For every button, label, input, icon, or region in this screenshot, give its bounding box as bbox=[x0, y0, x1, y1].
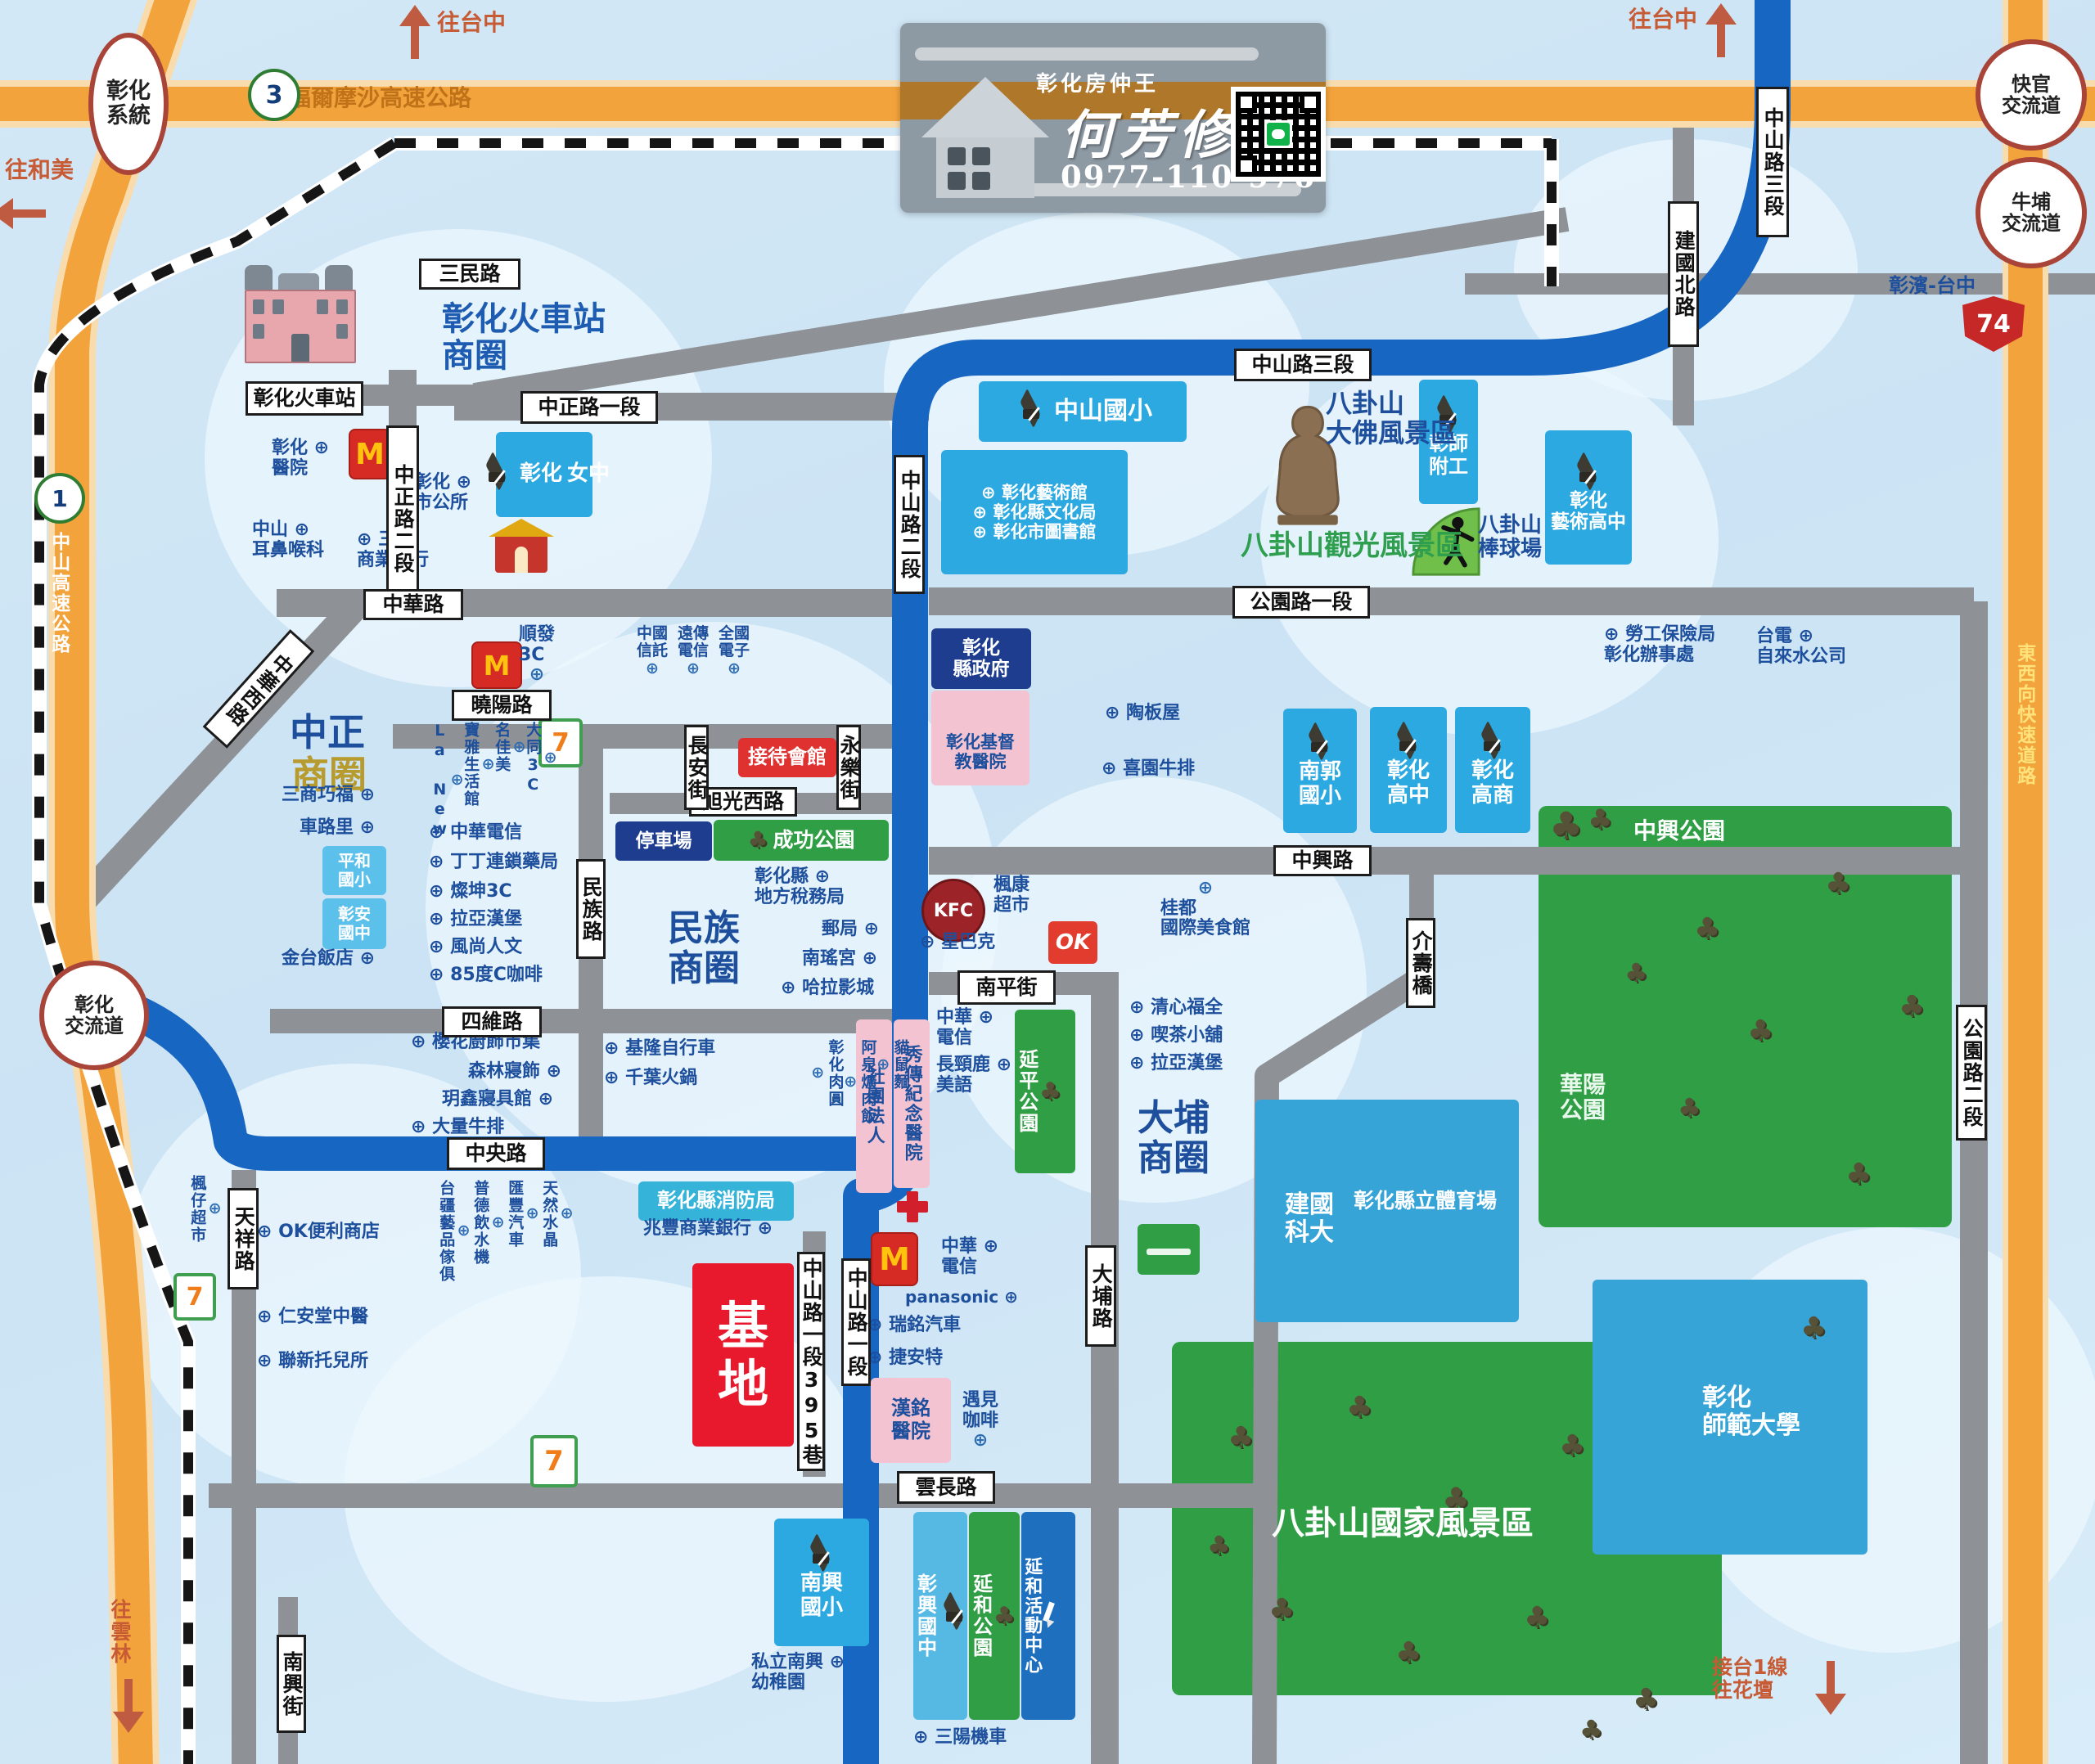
road-label-changan-st: 長安街 bbox=[684, 725, 709, 810]
poi-fengkang-market: 楓康超市 bbox=[993, 875, 1029, 916]
tree-icon: ♣ bbox=[1678, 1095, 1701, 1121]
christian-hospital-box: 彰化基督教醫院 bbox=[931, 691, 1029, 785]
road-label-siwei-rd: 四維路 bbox=[442, 1006, 542, 1037]
seven-eleven-icon: 7 bbox=[173, 1273, 216, 1321]
poi-fengshang: ⊕ 風尚人文 bbox=[429, 938, 522, 958]
poi-tsannkuen-3c: ⊕ 燦坤3C bbox=[429, 882, 512, 902]
tree-icon: ♣ bbox=[1549, 807, 1583, 844]
grad-icon bbox=[1474, 731, 1510, 756]
poi-jintai-hotel: 金台飯店 ⊕ bbox=[282, 949, 375, 970]
mcdonalds-icon: M bbox=[471, 641, 522, 689]
tree-icon: ♣ bbox=[1588, 806, 1612, 834]
fire-bureau-box: 彰化縣消防局 bbox=[638, 1181, 794, 1221]
arrow-up bbox=[399, 5, 430, 62]
east-west-expressway-label: 東西向快速道路 bbox=[2013, 643, 2034, 786]
poi-starbucks: ⊕ 星巴克 bbox=[920, 933, 995, 953]
mcdonalds-icon: M bbox=[349, 429, 391, 479]
poi-hala-cinema: ⊕ 哈拉影城 bbox=[781, 979, 874, 999]
changhua-girls-high-box: 彰化女中 bbox=[496, 432, 592, 517]
mcdonalds-icon: M bbox=[871, 1232, 918, 1286]
road-label-zhongyang-rd: 中央路 bbox=[447, 1137, 545, 1170]
poi-dingding-pharmacy: ⊕ 丁丁連鎖藥局 bbox=[429, 853, 558, 873]
zhongshan-elementary-box: 中山國小 bbox=[979, 381, 1187, 442]
poi-cht-site: 中華 ⊕電信 bbox=[941, 1237, 998, 1277]
stadium-label: 彰化縣立體育場 bbox=[1354, 1190, 1497, 1213]
line-app-icon bbox=[1264, 120, 1292, 148]
road-label-nanxing-st: 南興街 bbox=[277, 1635, 306, 1733]
to-taichung-left: 往台中 bbox=[437, 10, 506, 35]
poi-laya-burger-2: ⊕ 拉亞漢堡 bbox=[1129, 1054, 1223, 1074]
poi-labor-insurance: ⊕ 勞工保險局彰化辦事處 bbox=[1604, 625, 1715, 665]
poi-giraffe-english: 長頸鹿 ⊕美語 bbox=[936, 1055, 1011, 1096]
road-label-zhonghua-rd: 中華路 bbox=[363, 589, 463, 620]
poi-yuexin-bedding: 玥鑫寢具館 ⊕ bbox=[442, 1090, 553, 1110]
yanhe-center-box: 延和活動中心 bbox=[1021, 1512, 1075, 1720]
poi-post-office: 郵局 ⊕ bbox=[822, 920, 879, 940]
tree-icon: ♣ bbox=[747, 829, 768, 852]
road-label-tianxiang-rd: 天祥路 bbox=[228, 1188, 259, 1289]
tree-icon: ♣ bbox=[1694, 915, 1720, 944]
grad-icon bbox=[1301, 732, 1337, 757]
poi-city-office: 彰化 ⊕市公所 bbox=[414, 473, 471, 513]
poi-lanew: ⊕La New bbox=[430, 722, 466, 839]
poi-giant-bike: ⊕ 捷安特 bbox=[867, 1348, 943, 1369]
changhua-vocational-box: 彰化高商 bbox=[1455, 707, 1530, 833]
grad-icon bbox=[803, 1544, 839, 1568]
changbin-taichung-label: 彰濱-台中 bbox=[1889, 275, 1976, 297]
jianguo-tech-label: 建國科大 bbox=[1285, 1191, 1334, 1246]
bagua-tourism-label: 八卦山觀光風景區 bbox=[1241, 530, 1463, 561]
hanming-hospital-box: 漢銘醫院 bbox=[871, 1378, 951, 1463]
road-label-zhongshan-sec2-v: 中山路二段 bbox=[894, 455, 925, 594]
road-label-xiaoyang-rd: 曉陽路 bbox=[452, 690, 552, 721]
poi-puder-water: ⊕普德飲水機 bbox=[471, 1180, 507, 1266]
poi-changhua-hospital: 彰化 ⊕醫院 bbox=[272, 439, 329, 479]
poi-maoshumian: 貓鼠麵⊕ bbox=[874, 1039, 909, 1091]
poi-cht-nanping: 中華 ⊕電信 bbox=[936, 1008, 993, 1048]
county-government-box: 彰化縣政府 bbox=[931, 628, 1031, 689]
road-label-zhongxing-rd: 中興路 bbox=[1273, 845, 1372, 876]
grad-icon bbox=[1013, 399, 1049, 424]
temple-icon bbox=[488, 519, 555, 581]
art-museum-box: ⊕ 彰化藝術館⊕ 彰化縣文化局⊕ 彰化市圖書館 bbox=[941, 450, 1128, 574]
bagua-buddha-area-label: 八卦山大佛風景區 bbox=[1326, 389, 1457, 448]
road-label-jieshou-bridge: 介壽橋 bbox=[1406, 918, 1435, 1008]
road-label-zhongzheng-sec2: 中正路二段 bbox=[386, 425, 419, 612]
huayang-park-label: 華陽公園 bbox=[1560, 1072, 1606, 1123]
poi-laya-burger-1: ⊕ 拉亞漢堡 bbox=[429, 910, 522, 930]
poi-taobanwu: ⊕ 陶板屋 bbox=[1105, 704, 1180, 724]
poi-tax-bureau: 彰化縣 ⊕地方稅務局 bbox=[755, 867, 845, 907]
arrow-up bbox=[1705, 3, 1737, 61]
changhua-interchange-badge: 彰化交流道 bbox=[39, 961, 149, 1070]
poi-mega-bank: 兆豐商業銀行 ⊕ bbox=[643, 1219, 773, 1240]
road-label-gongyuan-sec2: 公園路二段 bbox=[1956, 1005, 1987, 1141]
ok-mart-icon: OK bbox=[1048, 921, 1097, 964]
poi-guidu-food: ⊕桂都國際美食館 bbox=[1160, 879, 1250, 939]
art-high-school-box: 彰化藝術高中 bbox=[1545, 430, 1632, 565]
tree-icon: ♣ bbox=[992, 1602, 1016, 1632]
poi-taipower-water: 台電 ⊕自來水公司 bbox=[1756, 627, 1846, 667]
road-label-gongyuan-sec1: 公園路一段 bbox=[1232, 586, 1370, 619]
poi-daliang-steak: ⊕ 大量牛排 bbox=[411, 1118, 504, 1138]
bagua-national-scenic-label: 八卦山國家風景區 bbox=[1272, 1505, 1534, 1542]
poi-cheluli: 車路里 ⊕ bbox=[300, 818, 375, 839]
road-label-dapu-rd: 大埔路 bbox=[1085, 1245, 1116, 1347]
station-label: 彰化火車站 bbox=[246, 381, 363, 416]
tree-icon: ♣ bbox=[1899, 992, 1925, 1022]
red-cross-icon bbox=[894, 1188, 931, 1226]
pinghe-elementary-box: 平和國小 bbox=[322, 846, 386, 895]
formosa-freeway-label: 福爾摩沙高速公路 bbox=[288, 85, 471, 110]
road-label-minzu-rd: 民族路 bbox=[576, 859, 606, 959]
tree-icon: ♣ bbox=[1579, 1717, 1603, 1743]
poi-chiba-hotpot: ⊕ 千葉火鍋 bbox=[604, 1069, 697, 1089]
tree-icon: ♣ bbox=[1228, 1424, 1254, 1453]
to-yunlin: 往雲林 bbox=[108, 1599, 131, 1665]
poi-renan-tcm: ⊕ 仁安堂中醫 bbox=[257, 1307, 368, 1328]
changxing-junior-high-box: 彰興國中 bbox=[913, 1512, 967, 1720]
poi-ruiming-auto: ⊕ 瑞銘汽車 bbox=[867, 1316, 961, 1336]
road-label-zhongshan-lane395: 中山路一段395巷 bbox=[797, 1252, 825, 1471]
to-taichung-right: 往台中 bbox=[1629, 7, 1697, 32]
national-highway-1-badge: 1 bbox=[34, 473, 85, 524]
tree-icon: ♣ bbox=[1395, 1639, 1421, 1668]
changhua-senior-high-box: 彰化高中 bbox=[1370, 707, 1447, 833]
changhua-system-badge: 彰化系統 bbox=[88, 33, 169, 175]
road-label-nanping-st: 南平街 bbox=[957, 970, 1056, 1005]
poi-panasonic: panasonic ⊕ bbox=[905, 1288, 1018, 1306]
changhua-location-map: 三民路中正路一段中正路二段中華路中華西路曉陽路旭光西路四維路中央路民族路南平街大… bbox=[0, 0, 2095, 1764]
poi-crystal-shop: ⊕天然水晶 bbox=[540, 1180, 575, 1249]
national-highway-3-badge: 3 bbox=[248, 69, 300, 121]
tree-icon: ♣ bbox=[1207, 1532, 1231, 1559]
tree-icon: ♣ bbox=[1559, 1432, 1585, 1461]
tree-icon: ♣ bbox=[1633, 1685, 1659, 1715]
poi-qingxin-fuquan: ⊕ 清心福全 bbox=[1129, 998, 1223, 1019]
tree-icon: ♣ bbox=[1524, 1604, 1550, 1633]
tree-icon: ♣ bbox=[1845, 1160, 1872, 1190]
tree-icon: ♣ bbox=[1825, 870, 1851, 899]
poi-rouyuan: 彰化肉圓⊕ bbox=[809, 1039, 844, 1108]
road-label-yunchang-rd: 雲長路 bbox=[897, 1471, 995, 1504]
site-box: 基地 bbox=[692, 1263, 794, 1447]
pencil-icon bbox=[1042, 1602, 1055, 1630]
to-huatan: 接台1線往花壇 bbox=[1712, 1656, 1787, 1702]
road-label-zhongzheng-sec1: 中正路一段 bbox=[520, 391, 658, 424]
to-hemei: 往和美 bbox=[5, 157, 74, 182]
tree-icon: ♣ bbox=[1268, 1595, 1295, 1625]
road-label-sanmin-rd: 三民路 bbox=[419, 259, 520, 290]
road-label-zhongshan-sec3-v: 中山路三段 bbox=[1756, 87, 1789, 237]
yanping-park-box: ♣延平公園 bbox=[1015, 1010, 1075, 1173]
poi-xiyuan-steak: ⊕ 喜園牛排 bbox=[1102, 759, 1195, 780]
poi-elifemall: 全國電子⊕ bbox=[719, 625, 750, 677]
chenggong-park-box: ♣成功公園 bbox=[714, 820, 889, 861]
poi-zhongshan-ent: 中山 ⊕耳鼻喉科 bbox=[252, 520, 324, 560]
grad-icon bbox=[1390, 731, 1426, 756]
seven-eleven-icon: 7 bbox=[530, 1435, 578, 1487]
arrow-left bbox=[0, 198, 49, 229]
nanxing-elementary-box: 南興國小 bbox=[774, 1519, 869, 1646]
poi-fareastone: 遠傳電信⊕ bbox=[678, 625, 709, 677]
minzu-district-label: 民族商圈 bbox=[668, 908, 740, 989]
poi-nursery: ⊕ 聯新托兒所 bbox=[257, 1352, 368, 1372]
green-sign bbox=[1138, 1224, 1200, 1275]
grad-icon bbox=[1570, 462, 1606, 487]
qr-code bbox=[1231, 87, 1326, 182]
business-card: 彰化房仲王 何芳修 0977-110-976 bbox=[900, 23, 1326, 213]
house-logo bbox=[921, 77, 1049, 198]
tree-icon: ♣ bbox=[1346, 1393, 1372, 1423]
poi-meet-cafe: 遇見咖啡⊕ bbox=[962, 1391, 998, 1451]
poi-sanshang-qiaofu: 三商巧福 ⊕ bbox=[282, 785, 375, 806]
kuaiguan-interchange-badge: 快官交流道 bbox=[1976, 39, 2087, 151]
tree-icon: ♣ bbox=[1800, 1314, 1827, 1343]
poi-nanxing-kindergarten: 私立南興 ⊕幼稚園 bbox=[751, 1653, 845, 1693]
tree-icon: ♣ bbox=[1624, 960, 1648, 986]
niupu-interchange-badge: 牛埔交流道 bbox=[1976, 157, 2087, 268]
poi-furniture: ⊕台疆藝品傢俱 bbox=[437, 1180, 472, 1283]
road-label-jianguo-north-rd: 建國北路 bbox=[1668, 201, 1699, 347]
station-district-label: 彰化火車站商圈 bbox=[442, 301, 606, 375]
train-station-icon bbox=[245, 265, 353, 385]
zhongshan-freeway-label: 中山高速公路 bbox=[47, 532, 69, 655]
poi-chicha-shop: ⊕ 喫茶小舖 bbox=[1129, 1026, 1223, 1046]
agent-name: 何芳修 bbox=[1061, 93, 1237, 169]
poi-datong-3c: ⊕大同3C bbox=[524, 722, 559, 795]
grad-icon bbox=[479, 462, 515, 487]
poi-senlin-bedding: 森林寢飾 ⊕ bbox=[468, 1062, 561, 1082]
poi-feng-market: ⊕楓仔超市 bbox=[188, 1175, 223, 1244]
zhongzheng-district-label-1: 中正 bbox=[290, 712, 365, 754]
poi-ok-store: ⊕ OK便利商店 bbox=[257, 1222, 380, 1243]
poi-nanyao-temple: 南瑤宮 ⊕ bbox=[802, 949, 877, 970]
tree-icon: ♣ bbox=[1038, 1078, 1062, 1108]
road-label-zhongshan-sec3-h: 中山路三段 bbox=[1234, 349, 1372, 381]
bagua-baseball-label: 八卦山棒球場 bbox=[1478, 514, 1542, 561]
arrow-down bbox=[1815, 1658, 1846, 1715]
poi-85c: ⊕ 85度C咖啡 bbox=[429, 965, 543, 986]
nanguo-elementary-box: 南郭國小 bbox=[1283, 709, 1357, 833]
poi-sym-motor: ⊕ 三陽機車 bbox=[913, 1728, 1007, 1748]
zhongxing-park-label: 中興公園 bbox=[1633, 818, 1725, 844]
poi-huifeng-auto: ⊕匯豐汽車 bbox=[506, 1180, 541, 1249]
yanhe-park-box: ♣延和公園 bbox=[969, 1512, 1020, 1720]
poi-mingjiamei: ⊕名佳美 bbox=[493, 722, 528, 773]
reception-hall-box: 接待會館 bbox=[738, 738, 836, 777]
grad-icon bbox=[936, 1602, 972, 1627]
poi-kongroufan: 阿泉爌肉飯⊕ bbox=[841, 1039, 876, 1125]
ncue-label: 彰化師範大學 bbox=[1702, 1384, 1800, 1439]
arrow-down bbox=[113, 1676, 144, 1733]
poi-bike-shop: ⊕ 基隆自行車 bbox=[604, 1039, 715, 1060]
road-label-yongle-st: 永樂街 bbox=[836, 725, 861, 810]
road-label-zhongshan-sec1-v: 中山路一段 bbox=[841, 1258, 871, 1386]
poi-ctbc: 中國信託⊕ bbox=[637, 625, 668, 677]
tree-icon: ♣ bbox=[1747, 1017, 1773, 1046]
dapu-district-label: 大埔商圈 bbox=[1138, 1098, 1210, 1179]
poi-shunfa-3c: 順發3C⊕ bbox=[519, 625, 555, 686]
changan-junior-high-box: 彰安國中 bbox=[322, 898, 386, 949]
parking-lot-box: 停車場 bbox=[615, 821, 712, 861]
card-stripe bbox=[915, 47, 1259, 61]
poi-poya: ⊕寶雅生活館 bbox=[462, 722, 497, 808]
